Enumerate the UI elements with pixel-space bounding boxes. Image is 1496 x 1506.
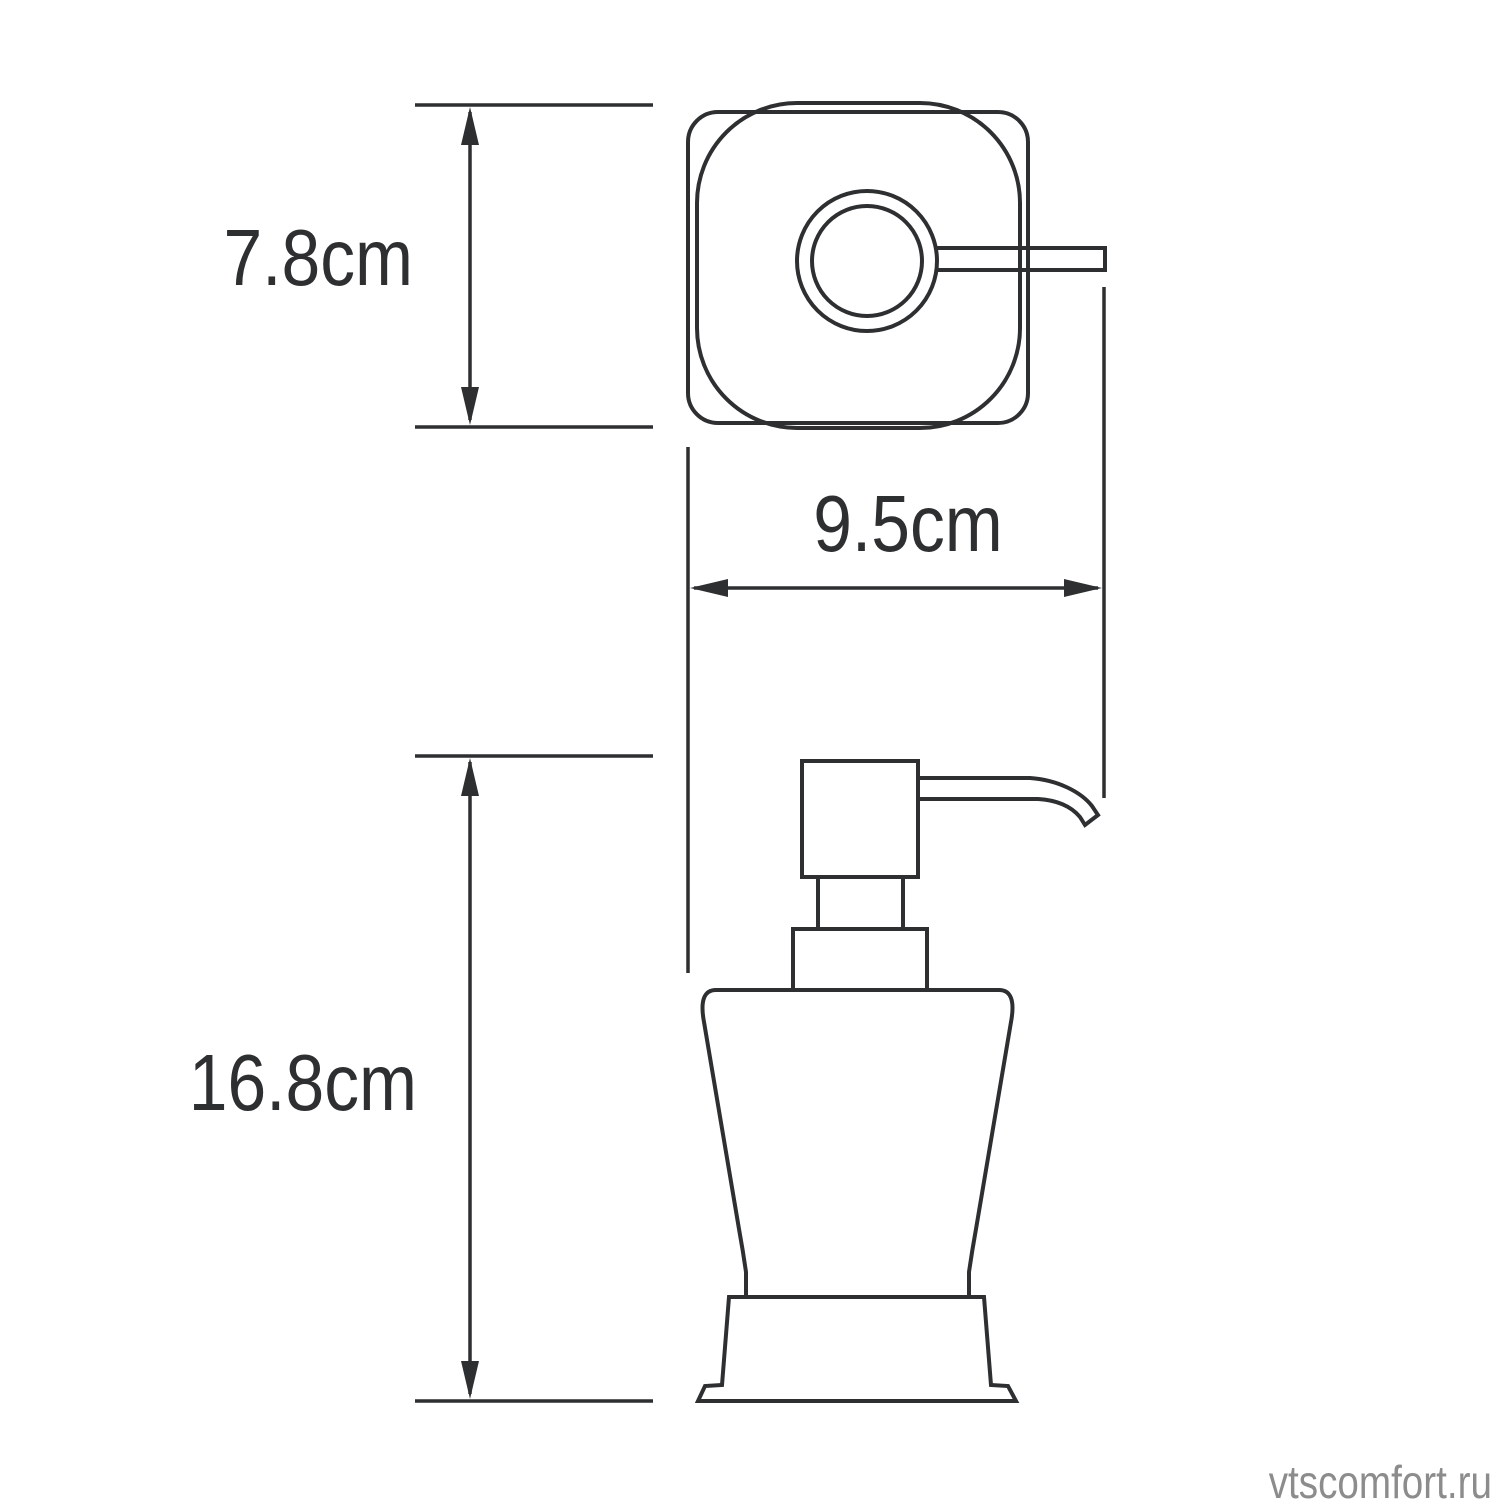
dimension-height: [415, 756, 653, 1401]
plan-pump-inner-circle: [812, 206, 922, 316]
pump-head: [802, 761, 918, 877]
drawing-canvas: 7.8cm 9.5cm 16.8cm vtscomfort.ru: [0, 0, 1496, 1506]
side-view: [698, 761, 1098, 1401]
depth-arrowhead-up: [461, 107, 479, 145]
depth-arrowhead-down: [461, 387, 479, 425]
width-arrowhead-right: [1064, 579, 1102, 597]
width-arrowhead-left: [690, 579, 728, 597]
dimension-label-depth: 7.8cm: [196, 218, 414, 298]
dimension-label-width: 9.5cm: [778, 484, 1039, 564]
pump-collar: [793, 929, 927, 990]
bottle-base: [698, 1297, 1016, 1401]
dimension-width: [688, 287, 1104, 973]
top-view: [688, 103, 1105, 428]
plan-outer-square: [688, 112, 1028, 423]
height-arrowhead-up: [461, 758, 479, 796]
pump-neck: [818, 877, 903, 929]
height-arrowhead-down: [461, 1361, 479, 1399]
plan-body-squircle: [697, 103, 1020, 428]
dimension-label-height: 16.8cm: [167, 1043, 417, 1123]
dimension-depth: [415, 105, 653, 427]
plan-pump-outer-circle: [797, 191, 937, 331]
watermark: vtscomfort.ru: [1213, 1459, 1492, 1505]
bottle-body: [703, 990, 1013, 1297]
pump-spout: [918, 778, 1098, 825]
